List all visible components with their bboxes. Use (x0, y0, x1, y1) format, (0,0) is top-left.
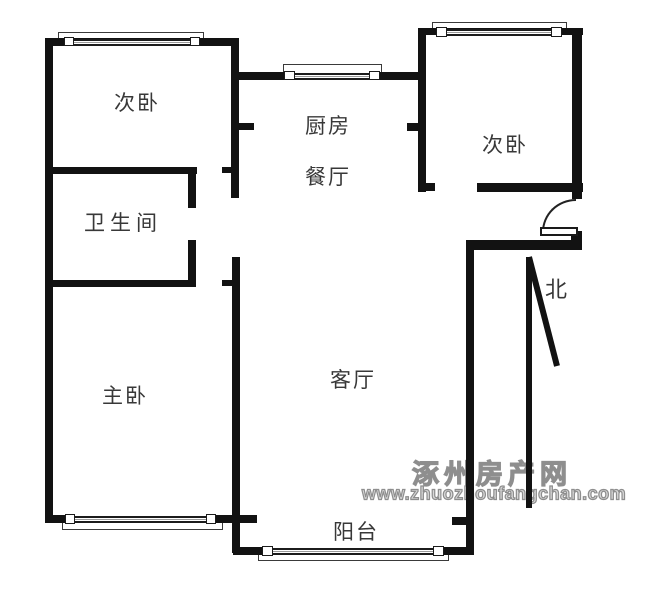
wall-balcony-bottom-right (443, 547, 474, 555)
wall-bathroom-right-upper (188, 172, 196, 208)
wall-bedroom-left-right (231, 38, 239, 198)
window-sill-line (258, 555, 449, 561)
wall-center-divider (232, 257, 240, 553)
window-end-cap (433, 546, 444, 556)
window-bedroom-right (446, 29, 553, 36)
room-label-dining: 餐厅 (305, 161, 351, 191)
window-end-cap (65, 514, 75, 524)
room-label-living-room: 客厅 (330, 364, 376, 394)
watermark-site-url: www.zhuozhoufangchan.com (362, 484, 626, 505)
wall-kitchen-stub-west (238, 123, 254, 130)
wall-bedroom-right-bottom (477, 183, 583, 192)
window-end-cap (436, 27, 447, 37)
wall-bathroom-right-lower (188, 240, 196, 284)
wall-balcony-bottom-left (233, 547, 265, 555)
entry-door-leaf (540, 227, 578, 236)
wall-kitchen-stub-east (407, 123, 418, 131)
wall-kitchen-top-left (237, 72, 286, 80)
wall-bedroom-right-door-jamb (418, 183, 435, 191)
window-balcony (272, 548, 435, 555)
room-label-balcony: 阳台 (333, 516, 379, 546)
wall-outer-right (572, 28, 582, 199)
window-end-cap (64, 37, 74, 46)
window-end-cap (262, 546, 273, 556)
window-kitchen (294, 73, 371, 80)
wall-bathroom-top-stub (222, 167, 238, 173)
wall-balcony-stub-right (452, 517, 466, 525)
wall-bathroom-top (45, 167, 197, 174)
window-end-cap (369, 71, 380, 80)
room-label-master-bedroom: 主卧 (102, 380, 148, 410)
room-label-bathroom: 卫生间 (84, 207, 162, 237)
compass-north-label: 北 (545, 272, 569, 304)
window-sill-line (62, 523, 223, 530)
window-sill-line (283, 64, 382, 73)
window-master-bedroom (74, 516, 208, 523)
window-end-cap (551, 27, 562, 37)
wall-bedroom-right-left (418, 28, 426, 192)
floorplan-canvas: 涿州房产网 www.zhuozhoufangchan.com (0, 0, 646, 600)
room-label-bedroom-right: 次卧 (482, 129, 528, 159)
window-end-cap (190, 37, 200, 46)
wall-master-bottom-right (215, 515, 257, 523)
window-bedroom-left (73, 39, 192, 46)
room-label-kitchen: 厨房 (305, 110, 351, 140)
window-end-cap (284, 71, 295, 80)
wall-bathroom-bottom (45, 280, 196, 287)
window-end-cap (206, 514, 216, 524)
room-label-bedroom-left: 次卧 (114, 87, 160, 117)
wall-master-bottom-left (45, 515, 67, 523)
wall-living-room-right (466, 240, 474, 553)
wall-kitchen-top-right (379, 72, 420, 80)
